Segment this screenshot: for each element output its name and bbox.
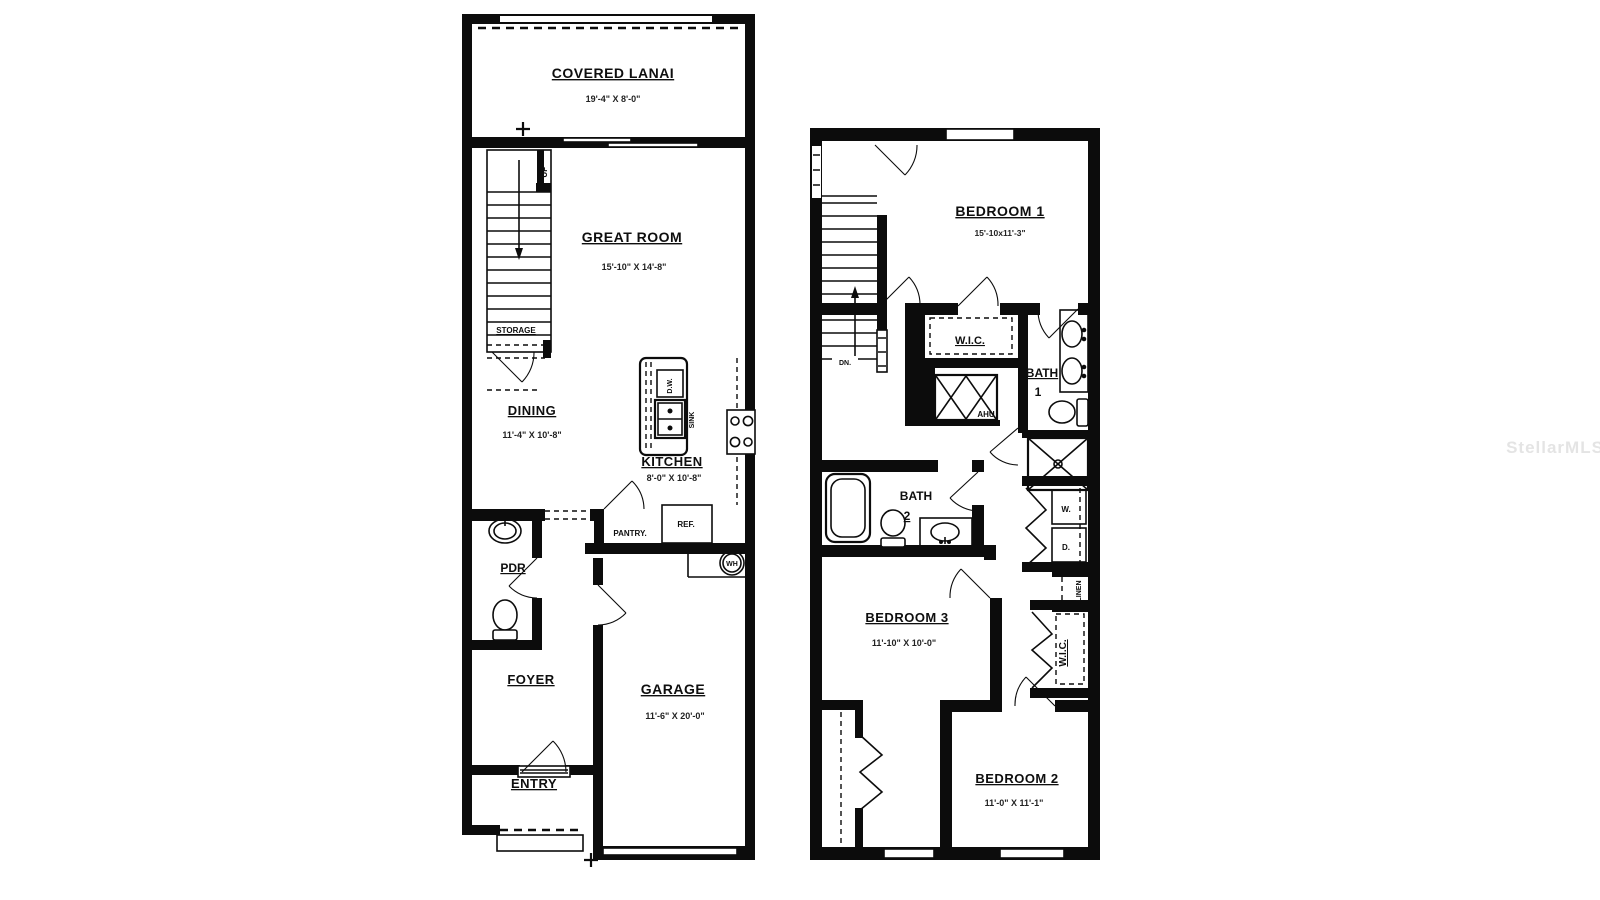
second-floor-doors [841,145,1078,845]
sink-label: SINK [689,412,696,429]
garage-label: GARAGE [641,681,705,697]
bedroom2-label: BEDROOM 2 [975,771,1058,786]
first-floor-plan: UP STORAGE D.W. SINK [462,14,755,867]
bath1-fixtures [1028,310,1088,490]
bedroom1-label: BEDROOM 1 [955,203,1044,219]
stairs-down-label: DN. [839,360,851,367]
bedroom1-dims: 15'-10x11'-3" [974,228,1025,238]
dishwasher-label: D.W. [667,378,674,393]
entry-label: ENTRY [511,776,557,791]
kitchen-label: KITCHEN [641,454,702,469]
bedroom3-dims: 11'-10" X 10'-0" [872,638,936,648]
kitchen-dims: 8'-0" X 10'-8" [647,473,702,483]
first-floor-stairs: UP STORAGE [487,150,551,390]
dining-dims: 11'-4" X 10'-8" [502,430,561,440]
bath2-number: 2 [904,509,911,523]
linen-label: LINEN [1076,581,1083,602]
garage-dims: 11'-6" X 20'-0" [645,711,704,721]
bath1-number: 1 [1035,385,1042,399]
lanai-dims: 19'-4" X 8'-0" [586,94,641,104]
lanai-label: COVERED LANAI [552,65,674,81]
bath2-fixtures [826,474,972,548]
bedroom2-dims: 11'-0" X 11'-1" [985,798,1044,808]
second-floor-plan: DN. AHU [810,128,1100,860]
bath2-label: BATH [900,489,932,503]
washer-label: W. [1061,505,1070,514]
wic2-closet: W.I.C. [1056,614,1084,684]
dining-label: DINING [508,403,557,418]
powder-room-label: PDR [500,561,526,575]
bedroom3-label: BEDROOM 3 [865,610,948,625]
water-heater-label: WH [726,561,738,568]
great-room-dims: 15'-10" X 14'-8" [602,262,667,272]
powder-room-fixtures [489,519,537,640]
floorplan-canvas: UP STORAGE D.W. SINK [0,0,1600,900]
dryer-label: D. [1062,543,1070,552]
floorplan-page: UP STORAGE D.W. SINK [0,0,1600,900]
refrigerator-label: REF. [677,520,694,529]
stellar-mls-watermark: StellarMLS [1506,438,1600,457]
bath1-label: BATH [1026,366,1058,380]
wic1-label: W.I.C. [955,335,985,347]
ahu-closet: AHU [935,375,997,420]
laundry-closet: W. D. [1052,488,1086,562]
storage-label: STORAGE [496,326,536,335]
wic2-label: W.I.C. [1058,639,1069,666]
stairs-up-label: UP [540,166,549,178]
foyer-label: FOYER [507,672,554,687]
great-room-label: GREAT ROOM [582,229,682,245]
ahu-label: AHU [977,410,995,419]
pantry-label: PANTRY. [613,529,646,538]
second-floor-stairs: DN. [822,196,887,372]
